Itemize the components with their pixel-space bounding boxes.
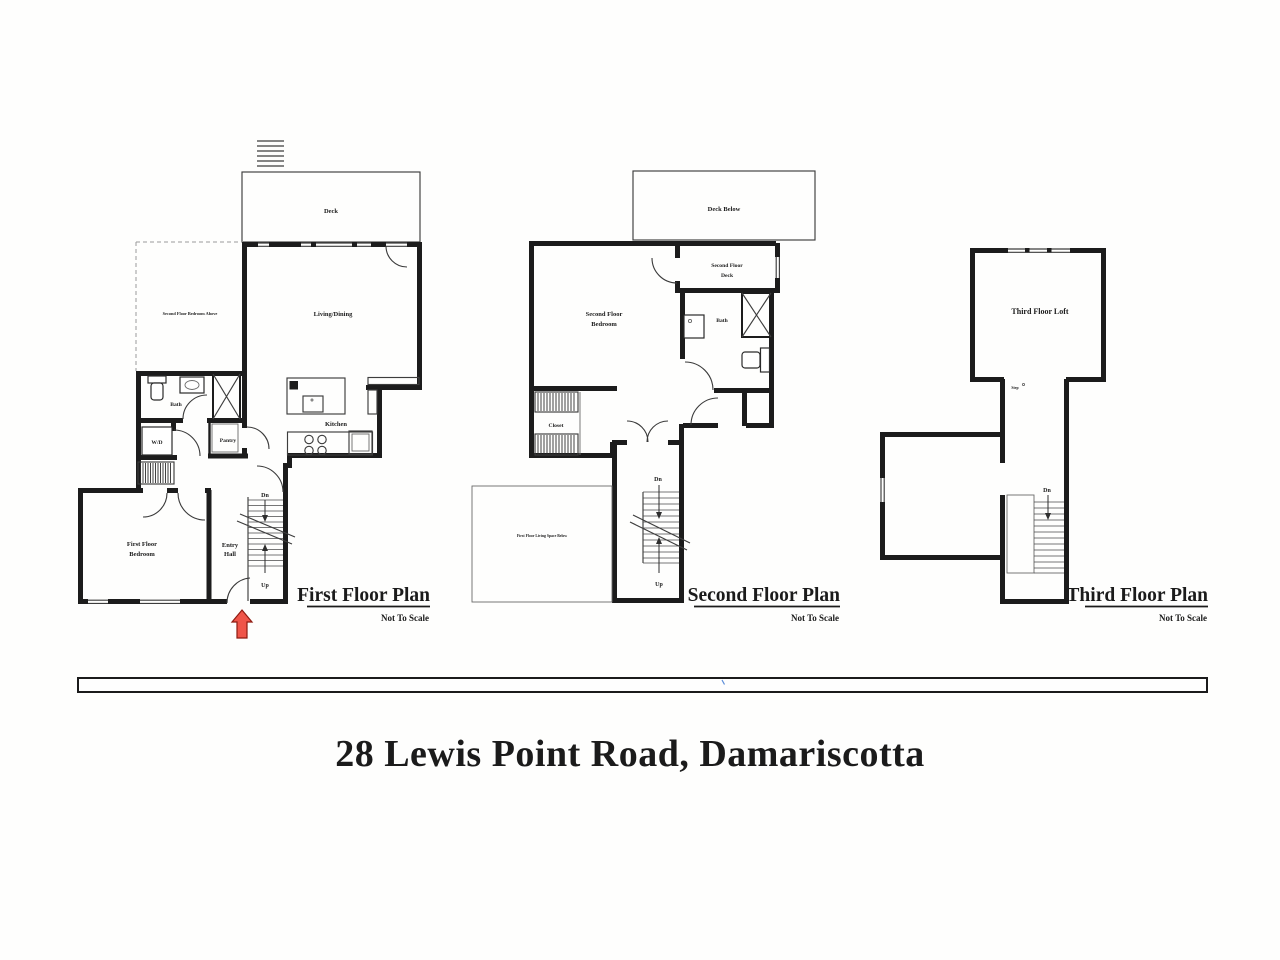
first-floor-scale-note: Not To Scale xyxy=(381,613,429,623)
bath-fixtures xyxy=(148,376,204,400)
third-floor-scale-note: Not To Scale xyxy=(1159,613,1207,623)
entry-arrow-icon xyxy=(232,610,252,638)
second-bedroom-label-line2: Bedroom xyxy=(591,321,617,328)
footer: 28 Lewis Point Road, Damariscotta xyxy=(78,678,1207,775)
step-note: Step xyxy=(1011,383,1024,390)
second-floor-door-arcs xyxy=(627,258,718,442)
second-floor-scale-note: Not To Scale xyxy=(791,613,839,623)
hatched-closet xyxy=(138,462,174,484)
second-bath-label: Bath xyxy=(716,318,728,324)
stairs-down-label: Dn xyxy=(261,493,269,499)
divider-bar xyxy=(78,678,1207,692)
living-dining-label: Living/Dining xyxy=(314,311,353,318)
living-space-below-label: First Floor Living Space Below xyxy=(517,534,568,538)
kitchen-label: Kitchen xyxy=(325,421,347,428)
floor-plan-page: Deck Second Floor Bedroom Above Bath W/D xyxy=(0,0,1280,960)
second-floor-plan: Deck Below Closet Bath xyxy=(472,171,840,623)
third-floor-stairs: Dn xyxy=(1007,488,1064,573)
third-floor-plan: Third Floor Loft Step Dn Third Floor Pla… xyxy=(880,248,1208,623)
bath-label: Bath xyxy=(170,402,182,408)
deck-edge-hatch-marks xyxy=(257,141,284,166)
second-floor-title: Second Floor Plan xyxy=(688,585,841,606)
first-bedroom-label-line1: First Floor xyxy=(127,541,157,548)
window-post xyxy=(1025,248,1030,253)
deck-outline xyxy=(242,172,420,242)
stairs-down-label: Dn xyxy=(1043,488,1051,494)
second-bedroom-label-line1: Second Floor xyxy=(586,311,623,318)
first-floor-title: First Floor Plan xyxy=(297,585,430,606)
entry-hall-label-line2: Hall xyxy=(224,551,236,558)
bedroom-above-dashed-outline xyxy=(136,242,243,371)
window-post xyxy=(352,242,357,247)
washer-dryer-label: W/D xyxy=(151,440,162,446)
address-title: 28 Lewis Point Road, Damariscotta xyxy=(335,733,925,775)
x-box xyxy=(213,374,240,419)
window-post xyxy=(1047,248,1052,253)
stairs-up-label: Up xyxy=(655,582,663,588)
second-deck-label-line2: Deck xyxy=(721,273,734,279)
deck-below-label: Deck Below xyxy=(708,206,741,213)
stairs-down-label: Dn xyxy=(654,477,662,483)
floor-plan-drawing: Deck Second Floor Bedroom Above Bath W/D xyxy=(0,0,1280,960)
pantry-label: Pantry xyxy=(220,438,237,444)
loft-label: Third Floor Loft xyxy=(1011,307,1069,316)
window-post xyxy=(311,242,316,247)
second-bath-fixtures xyxy=(684,293,771,372)
second-deck-label-line1: Second Floor xyxy=(711,263,743,269)
first-floor-plan: Deck Second Floor Bedroom Above Bath W/D xyxy=(78,141,430,638)
step-label: Step xyxy=(1011,386,1018,390)
entry-hall-label-line1: Entry xyxy=(222,542,239,549)
closet-label: Closet xyxy=(549,423,564,429)
third-floor-walls xyxy=(880,248,1106,604)
third-floor-title: Third Floor Plan xyxy=(1066,585,1208,606)
living-space-below-outline xyxy=(472,486,612,602)
bedroom-above-label: Second Floor Bedroom Above xyxy=(163,311,218,316)
stairs-up-label: Up xyxy=(261,583,269,589)
window-lines xyxy=(776,257,779,278)
deck-label: Deck xyxy=(324,208,338,215)
window-lines xyxy=(881,249,1070,502)
first-bedroom-label-line2: Bedroom xyxy=(129,551,155,558)
